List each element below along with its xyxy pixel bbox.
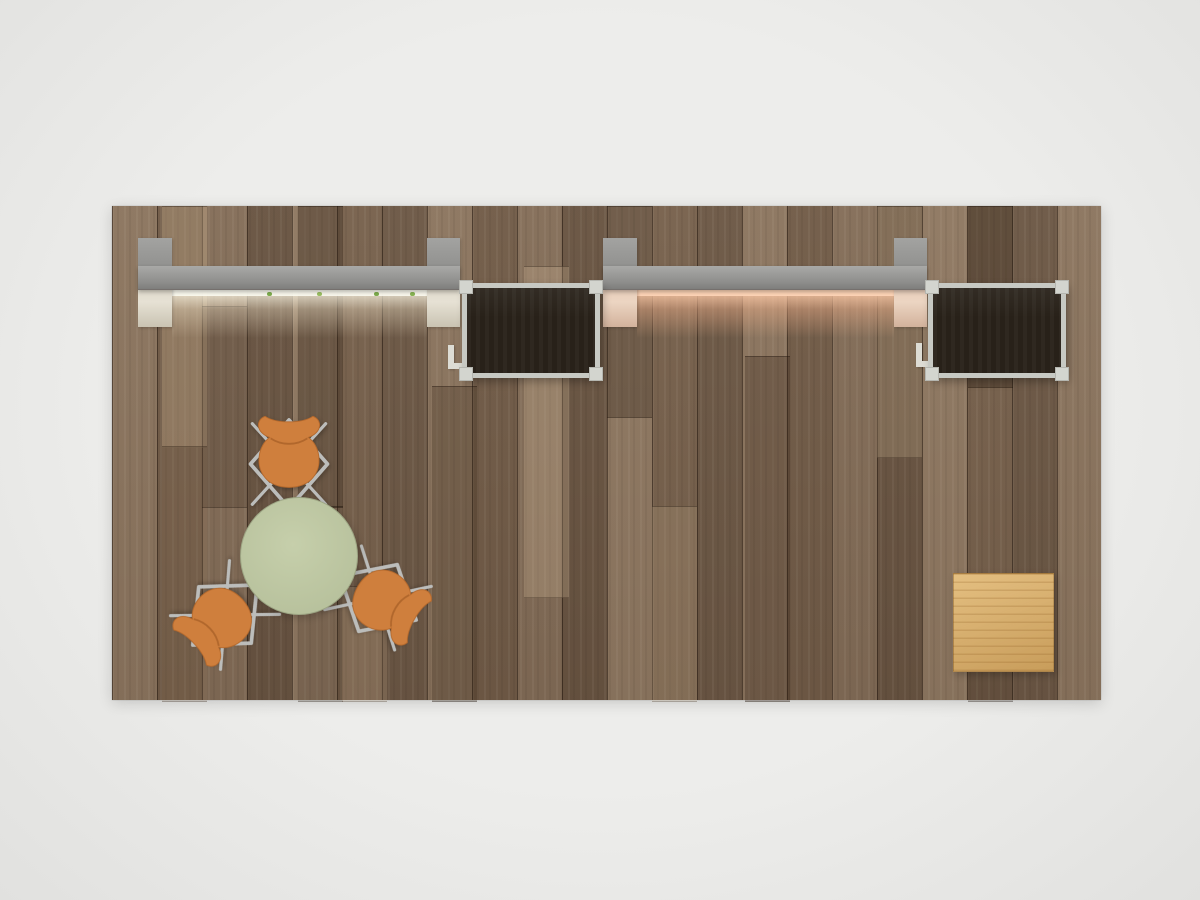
canopy-beam — [603, 266, 927, 290]
round-table — [240, 497, 358, 615]
monitor-bracket — [916, 343, 922, 367]
frame-corner — [1055, 280, 1069, 294]
frame-corner — [589, 367, 603, 381]
led-strip — [172, 290, 427, 296]
frame-corner — [1055, 367, 1069, 381]
monitor-screen — [467, 288, 595, 373]
floor-plank — [202, 306, 247, 508]
greenery-sprig — [317, 292, 322, 296]
floor-plank — [432, 386, 477, 702]
greenery-sprig — [267, 292, 272, 296]
wood-cube-pedestal — [953, 573, 1054, 672]
greenery-sprig — [374, 292, 379, 296]
greenery-sprig — [410, 292, 415, 296]
canopy-beam — [138, 266, 460, 290]
monitor-screen — [933, 288, 1061, 373]
monitor-left — [462, 283, 600, 378]
monitor-bracket — [448, 345, 454, 369]
frame-corner — [589, 280, 603, 294]
wood-floor — [112, 206, 1101, 700]
frame-corner — [925, 280, 939, 294]
frame-corner — [459, 280, 473, 294]
floor-plank — [652, 506, 697, 702]
frame-corner — [459, 367, 473, 381]
underglow-light-left — [172, 290, 427, 338]
led-strip — [637, 290, 894, 296]
floor-plank — [745, 356, 790, 702]
frame-corner — [925, 367, 939, 381]
render-stage — [0, 0, 1200, 900]
underglow-light-right — [637, 290, 894, 338]
monitor-right — [928, 283, 1066, 378]
